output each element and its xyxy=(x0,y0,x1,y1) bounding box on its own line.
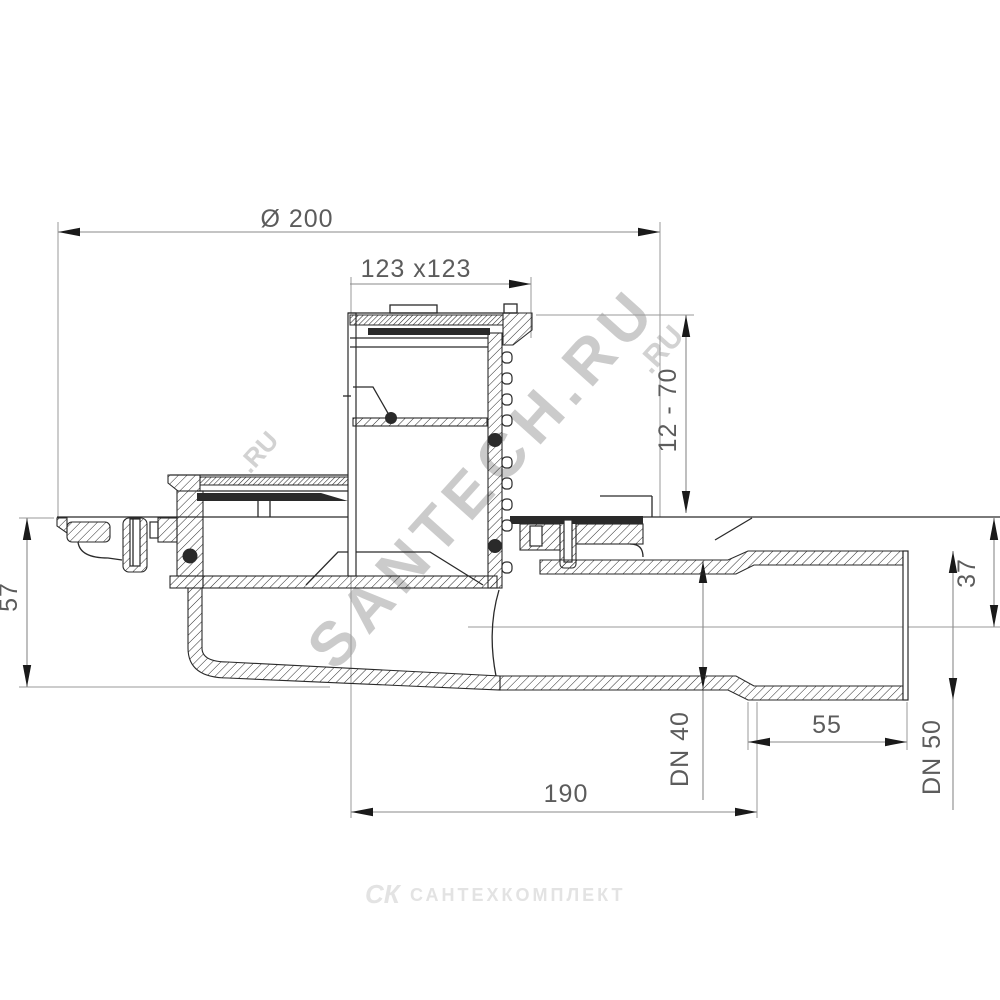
dim-outlet-dn40: DN 40 xyxy=(666,711,694,787)
dim-body-length: 190 xyxy=(544,780,589,808)
footer-logo: СК САНТЕХКОМПЛЕКТ xyxy=(365,879,626,909)
flange-clamp-left xyxy=(57,518,198,572)
riser-insert xyxy=(343,387,487,426)
santehkomplekt-logo-icon: СК xyxy=(365,879,402,909)
trap-partition xyxy=(203,576,497,588)
dim-axis-offset: 37 xyxy=(953,558,981,588)
outlet-pipe xyxy=(492,551,908,700)
o-ring-seal-riser-lower xyxy=(488,539,502,553)
floor-drain-section-drawing: SANTECH.RU .RU .RU xyxy=(0,0,1000,1000)
drain-body-section xyxy=(57,475,1000,700)
o-ring-seal-riser-upper xyxy=(488,433,502,447)
santehkomplekt-logo-text: САНТЕХКОМПЛЕКТ xyxy=(410,885,626,905)
watermark-fragment-left: .RU xyxy=(232,425,284,478)
riser-ribs xyxy=(502,352,512,573)
dim-grate-size: 123 x123 xyxy=(361,255,472,283)
dim-flange-diameter: Ø 200 xyxy=(260,205,333,233)
socket-end-face xyxy=(903,551,908,700)
dim-socket-length: 55 xyxy=(812,711,842,739)
dim-body-depth: 57 xyxy=(0,582,23,612)
section-break-arc xyxy=(492,590,499,676)
technical-drawing-page: SANTECH.RU .RU .RU xyxy=(0,0,1000,1000)
riser-left-wall xyxy=(348,313,356,576)
riser-grate xyxy=(348,304,532,347)
dim-height-adjust: 12 - 70 xyxy=(654,368,682,453)
dim-socket-dn50: DN 50 xyxy=(918,719,946,795)
